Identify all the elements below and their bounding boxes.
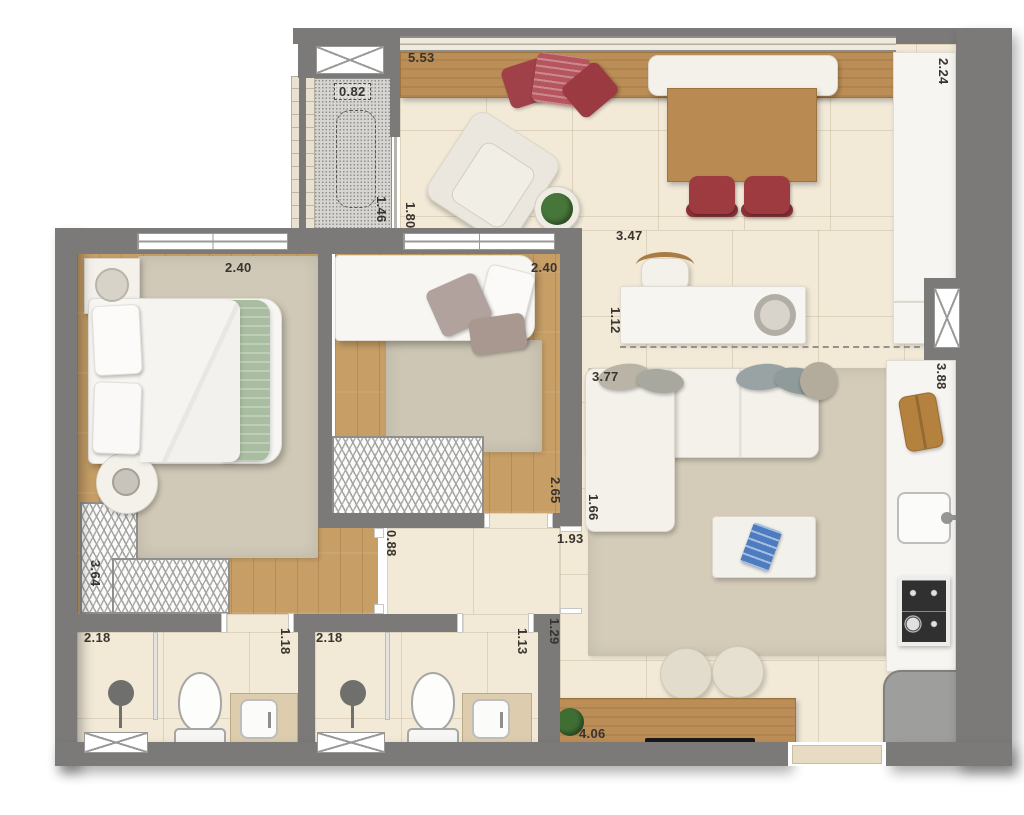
entry-door-icon bbox=[792, 745, 882, 764]
bed-pillow bbox=[91, 304, 143, 376]
kitchen-boundary-dashed-line bbox=[620, 346, 920, 348]
shower-head-icon bbox=[340, 680, 366, 706]
wall-between-bathrooms bbox=[298, 632, 315, 744]
dim-counter-top: 2.24 bbox=[936, 58, 951, 85]
bedroom1-entry-floor bbox=[318, 528, 378, 614]
dim-bedroom2-depth: 2.65 bbox=[548, 477, 563, 504]
kitchen-counter-top bbox=[893, 52, 956, 302]
bedroom2-door-jamb bbox=[484, 513, 490, 528]
dim-bedroom1-depth: 3.64 bbox=[88, 560, 103, 587]
dim-shaft-width: 0.82 bbox=[334, 83, 371, 100]
toilet-icon bbox=[178, 672, 222, 732]
hall-floor bbox=[387, 528, 560, 614]
dim-bathroom2-width: 2.18 bbox=[316, 630, 343, 645]
dim-dining-width: 3.47 bbox=[616, 228, 643, 243]
wall-laundry-right bbox=[390, 44, 400, 137]
hall-opening-jamb bbox=[560, 608, 582, 614]
bed-duvet bbox=[140, 300, 240, 462]
bedroom1-window-icon bbox=[137, 233, 288, 250]
wall-bedroom2-living bbox=[560, 254, 582, 532]
shower-arm bbox=[119, 704, 122, 728]
pouf bbox=[660, 648, 712, 700]
table-lamp-icon bbox=[112, 468, 140, 496]
plant-icon bbox=[541, 193, 573, 225]
wall-bottom bbox=[55, 742, 788, 766]
shower-head-icon bbox=[108, 680, 134, 706]
vanity-sink-icon bbox=[240, 699, 278, 739]
dim-passage-width: 1.29 bbox=[547, 618, 562, 645]
dim-living-width: 3.77 bbox=[592, 369, 619, 384]
bedroom2-door-floor bbox=[487, 513, 550, 528]
shower-arm bbox=[351, 704, 354, 728]
wall-bathrooms-top bbox=[288, 614, 463, 632]
table-lamp-icon bbox=[95, 268, 129, 302]
fridge-icon bbox=[883, 670, 961, 744]
dim-bathroom1-width: 2.18 bbox=[84, 630, 111, 645]
shower-glass-partition bbox=[385, 632, 390, 720]
dining-chair bbox=[744, 176, 790, 214]
wall-between-bedrooms bbox=[318, 254, 332, 513]
dim-wall-segment: 1.66 bbox=[586, 494, 601, 521]
dining-chair bbox=[689, 176, 735, 214]
bedroom2-window-icon bbox=[403, 233, 555, 250]
dim-balcony-depth: 1.80 bbox=[403, 202, 418, 229]
shaft-dashed-outline bbox=[336, 110, 376, 208]
bathroom2-door-jamb bbox=[457, 613, 463, 633]
wardrobe bbox=[332, 436, 484, 518]
island-sink-bowl bbox=[760, 300, 790, 330]
pouf bbox=[712, 646, 764, 698]
wall-right bbox=[956, 28, 1012, 766]
toilet-icon bbox=[411, 672, 455, 732]
kitchen-counter-step bbox=[893, 302, 927, 344]
dining-table bbox=[667, 88, 817, 182]
glass-rail bbox=[394, 137, 397, 235]
dim-kitchen-length: 3.88 bbox=[934, 363, 949, 390]
bedroom1-door-jamb bbox=[374, 528, 384, 538]
kitchen-window-icon bbox=[934, 288, 960, 348]
wall-laundry-left bbox=[299, 78, 306, 235]
wall-left bbox=[55, 228, 77, 766]
dim-bathroom2-depth: 1.13 bbox=[515, 628, 530, 655]
cooktop-icon bbox=[898, 576, 950, 646]
dim-hall-opening: 1.93 bbox=[557, 531, 584, 546]
bathroom1-door-jamb bbox=[221, 613, 227, 633]
vanity-sink-icon bbox=[472, 699, 510, 739]
bed-pillow-mauve bbox=[468, 312, 528, 355]
bathroom1-window-icon bbox=[84, 732, 148, 753]
shower-glass-partition bbox=[153, 632, 158, 720]
dim-island-depth: 1.12 bbox=[608, 307, 623, 334]
faucet-icon bbox=[268, 712, 271, 728]
wall-bedroom2-bottom bbox=[318, 513, 487, 528]
wall-bottom bbox=[886, 742, 1012, 766]
dim-laundry-width: 1.46 bbox=[374, 196, 389, 223]
laundry-window-icon bbox=[316, 46, 384, 74]
dim-bathroom1-depth: 1.18 bbox=[278, 628, 293, 655]
faucet-icon bbox=[500, 712, 503, 728]
bedroom1-door-jamb bbox=[374, 604, 384, 614]
bed-pillow bbox=[92, 381, 142, 455]
dim-living-length: 4.06 bbox=[579, 726, 606, 741]
wall-bathrooms-top bbox=[55, 614, 227, 632]
balcony-window bbox=[400, 36, 896, 52]
bedroom2-door-jamb bbox=[547, 513, 553, 528]
floor-plan: 5.53 0.82 1.46 1.80 2.24 3.47 1.12 2.40 … bbox=[0, 0, 1024, 815]
dim-bedroom1-width: 2.40 bbox=[225, 260, 252, 275]
dim-balcony-width: 5.53 bbox=[408, 50, 435, 65]
bathroom2-window-icon bbox=[317, 732, 385, 753]
wardrobe bbox=[112, 558, 230, 614]
dim-bedroom2-width: 2.40 bbox=[531, 260, 558, 275]
dim-hall-width: 0.88 bbox=[384, 530, 399, 557]
